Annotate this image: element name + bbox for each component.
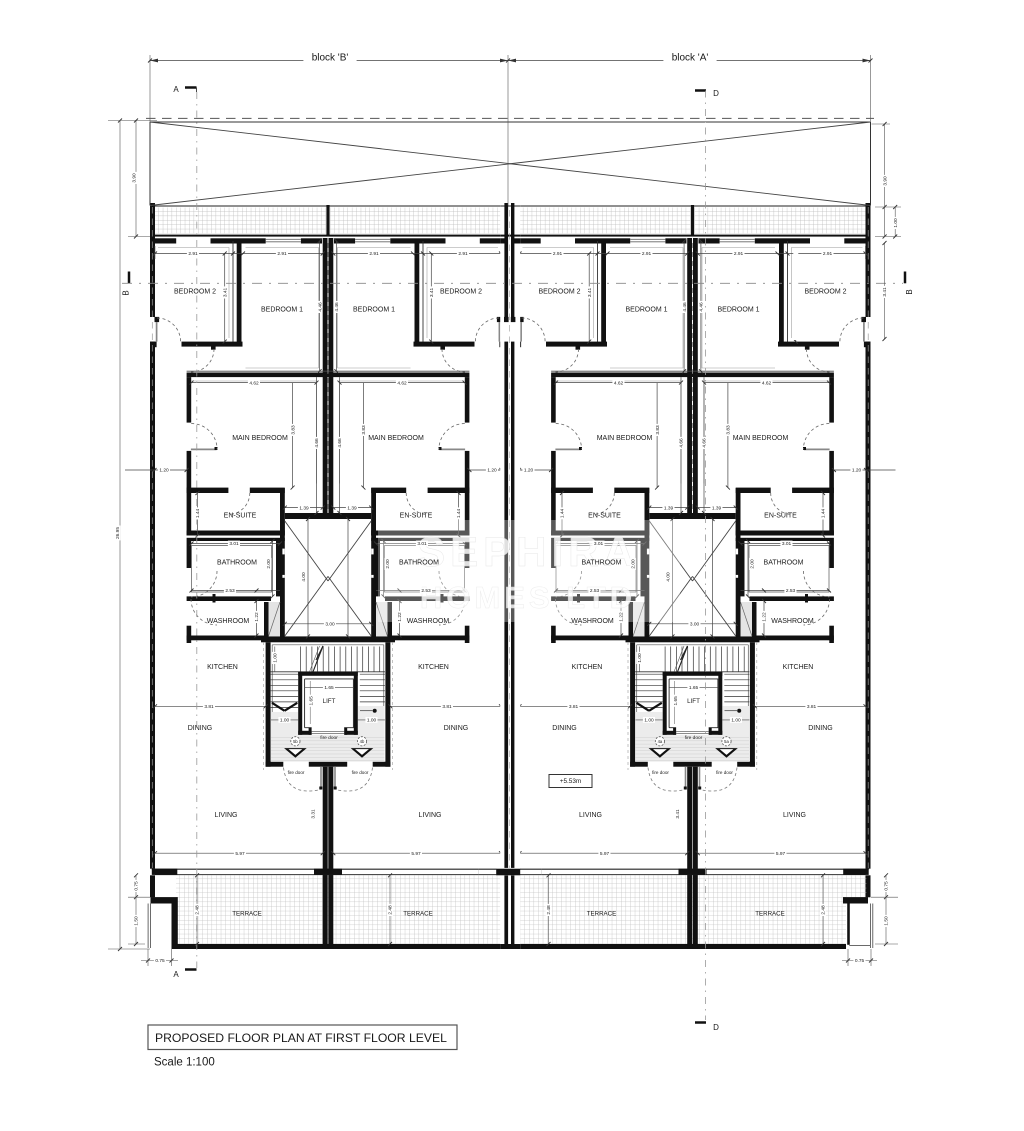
svg-text:MAIN BEDROOM: MAIN BEDROOM [597, 435, 653, 442]
svg-text:MAIN BEDROOM: MAIN BEDROOM [733, 435, 789, 442]
svg-text:WASHROOM: WASHROOM [771, 618, 814, 625]
svg-text:LIVING: LIVING [579, 812, 602, 819]
svg-text:1.00: 1.00 [893, 218, 899, 228]
svg-text:LIVING: LIVING [419, 812, 442, 819]
svg-text:5b: 5b [293, 739, 298, 744]
svg-text:2.91: 2.91 [277, 251, 287, 257]
svg-text:A: A [173, 85, 179, 94]
svg-text:fire door: fire door [288, 770, 305, 775]
svg-text:DINING: DINING [808, 725, 833, 732]
svg-text:3.01: 3.01 [782, 541, 792, 547]
svg-text:2.00: 2.00 [631, 559, 637, 569]
svg-text:4.62: 4.62 [249, 380, 259, 386]
svg-text:EN-SUITE: EN-SUITE [588, 513, 621, 520]
svg-text:BEDROOM 2: BEDROOM 2 [538, 288, 580, 295]
svg-text:2.91: 2.91 [188, 251, 198, 257]
svg-text:HOMES LTD: HOMES LTD [420, 580, 636, 615]
svg-text:2.48: 2.48 [821, 905, 827, 915]
svg-text:1.20: 1.20 [487, 468, 497, 474]
svg-text:1.44: 1.44 [456, 509, 462, 519]
svg-text:3.81: 3.81 [569, 704, 579, 710]
svg-text:3.41: 3.41 [429, 288, 435, 298]
svg-text:BEDROOM 1: BEDROOM 1 [353, 306, 395, 313]
svg-text:TERRACE: TERRACE [232, 911, 262, 918]
svg-text:WASHROOM: WASHROOM [407, 618, 450, 625]
svg-text:4.66: 4.66 [314, 438, 320, 448]
svg-text:DINING: DINING [444, 725, 469, 732]
svg-text:4.46: 4.46 [682, 302, 688, 312]
svg-text:2.53: 2.53 [421, 588, 431, 594]
svg-text:1.50: 1.50 [134, 916, 140, 926]
svg-text:DINING: DINING [552, 725, 577, 732]
svg-text:3.83: 3.83 [290, 425, 296, 435]
svg-text:1.44: 1.44 [195, 509, 201, 519]
svg-text:1.00: 1.00 [280, 718, 290, 724]
svg-text:1.20: 1.20 [524, 468, 534, 474]
svg-text:LIVING: LIVING [783, 812, 806, 819]
svg-text:3.01: 3.01 [229, 541, 239, 547]
svg-text:BATHROOM: BATHROOM [582, 560, 622, 567]
svg-text:BATHROOM: BATHROOM [764, 560, 804, 567]
svg-text:3.01: 3.01 [417, 541, 427, 547]
svg-text:BEDROOM 1: BEDROOM 1 [717, 306, 759, 313]
svg-text:3.41: 3.41 [675, 809, 681, 819]
svg-text:fire door: fire door [685, 735, 703, 741]
svg-text:BEDROOM 1: BEDROOM 1 [261, 306, 303, 313]
svg-text:3.01: 3.01 [594, 541, 604, 547]
svg-text:1.22: 1.22 [762, 612, 768, 622]
svg-text:A: A [173, 970, 179, 979]
svg-text:WASHROOM: WASHROOM [207, 618, 250, 625]
svg-text:TERRACE: TERRACE [755, 911, 785, 918]
svg-text:2.91: 2.91 [642, 251, 652, 257]
svg-text:3.83: 3.83 [361, 425, 367, 435]
svg-text:3.81: 3.81 [442, 704, 452, 710]
svg-text:1.44: 1.44 [821, 509, 827, 519]
svg-text:1.65: 1.65 [673, 696, 679, 706]
svg-text:PROPOSED FLOOR PLAN AT FIRST F: PROPOSED FLOOR PLAN AT FIRST FLOOR LEVEL [155, 1031, 447, 1045]
svg-text:2.53: 2.53 [225, 588, 235, 594]
svg-text:2.53: 2.53 [786, 588, 796, 594]
svg-text:1.20: 1.20 [159, 468, 169, 474]
svg-text:DINING: DINING [188, 725, 213, 732]
svg-text:3.90: 3.90 [882, 176, 888, 186]
svg-text:4.66: 4.66 [679, 438, 685, 448]
svg-text:3.41: 3.41 [222, 288, 228, 298]
svg-text:26.95: 26.95 [115, 527, 121, 539]
svg-text:2.91: 2.91 [823, 251, 833, 257]
svg-text:3.41: 3.41 [882, 287, 888, 297]
svg-text:D: D [713, 1023, 719, 1032]
svg-text:3.83: 3.83 [655, 425, 661, 435]
svg-text:3.81: 3.81 [807, 704, 817, 710]
svg-text:1.39: 1.39 [299, 505, 309, 511]
svg-text:1.39: 1.39 [664, 505, 674, 511]
svg-text:5.97: 5.97 [600, 851, 610, 857]
svg-text:3.31: 3.31 [311, 809, 317, 819]
svg-text:EN-SUITE: EN-SUITE [400, 513, 433, 520]
svg-text:SEPHIRA: SEPHIRA [417, 528, 639, 575]
svg-text:EN-SUITE: EN-SUITE [764, 513, 797, 520]
svg-text:LIFT: LIFT [323, 698, 336, 705]
svg-text:MAIN BEDROOM: MAIN BEDROOM [232, 435, 288, 442]
svg-text:0.75: 0.75 [134, 881, 140, 891]
svg-text:KITCHEN: KITCHEN [418, 664, 449, 671]
svg-text:BATHROOM: BATHROOM [217, 560, 257, 567]
svg-text:4.00: 4.00 [301, 572, 307, 582]
svg-text:B: B [121, 290, 130, 295]
svg-text:1.65: 1.65 [689, 685, 699, 691]
svg-text:B: B [905, 289, 914, 294]
svg-text:MAIN BEDROOM: MAIN BEDROOM [368, 435, 424, 442]
svg-text:5a: 5a [724, 739, 729, 744]
svg-text:4b: 4b [360, 739, 365, 744]
svg-text:2.91: 2.91 [734, 251, 744, 257]
svg-text:+5.53m: +5.53m [560, 778, 582, 785]
svg-text:2.48: 2.48 [195, 905, 201, 915]
svg-text:3.83: 3.83 [726, 425, 732, 435]
svg-text:2.00: 2.00 [385, 559, 391, 569]
svg-text:0.75: 0.75 [155, 958, 165, 964]
svg-text:BEDROOM 2: BEDROOM 2 [174, 288, 216, 295]
svg-text:TERRACE: TERRACE [403, 911, 433, 918]
svg-text:1.00: 1.00 [367, 718, 377, 724]
svg-text:1.39: 1.39 [347, 505, 357, 511]
svg-text:2.91: 2.91 [369, 251, 379, 257]
svg-text:3.00: 3.00 [690, 622, 700, 628]
svg-text:4.46: 4.46 [699, 302, 705, 312]
svg-text:0.75: 0.75 [855, 958, 865, 964]
svg-text:5.97: 5.97 [235, 851, 245, 857]
svg-text:Scale 1:100: Scale 1:100 [154, 1057, 215, 1069]
svg-text:2.48: 2.48 [388, 905, 394, 915]
svg-text:2.48: 2.48 [546, 905, 552, 915]
svg-text:1.22: 1.22 [397, 612, 403, 622]
svg-text:2.91: 2.91 [553, 251, 563, 257]
svg-text:4.00: 4.00 [666, 572, 672, 582]
svg-text:block 'B': block 'B' [312, 53, 349, 64]
svg-text:fire door: fire door [352, 770, 369, 775]
svg-text:3.00: 3.00 [325, 622, 335, 628]
svg-text:1.50: 1.50 [884, 916, 890, 926]
svg-text:fire door: fire door [320, 735, 338, 741]
svg-text:4.66: 4.66 [702, 438, 708, 448]
svg-text:3.81: 3.81 [204, 704, 214, 710]
svg-text:D: D [713, 89, 719, 98]
svg-text:fire door: fire door [716, 770, 733, 775]
svg-text:1.00: 1.00 [637, 653, 643, 663]
svg-text:4.66: 4.66 [337, 438, 343, 448]
svg-text:block 'A': block 'A' [672, 53, 709, 64]
svg-text:3.90: 3.90 [132, 173, 138, 183]
svg-text:4a: 4a [658, 739, 663, 744]
svg-text:1.39: 1.39 [712, 505, 722, 511]
svg-text:3.41: 3.41 [587, 288, 593, 298]
svg-text:WASHROOM: WASHROOM [571, 618, 614, 625]
svg-text:4.46: 4.46 [317, 302, 323, 312]
svg-text:KITCHEN: KITCHEN [572, 664, 603, 671]
svg-text:2.53: 2.53 [590, 588, 600, 594]
svg-text:EN-SUITE: EN-SUITE [224, 513, 257, 520]
svg-text:5.97: 5.97 [411, 851, 421, 857]
svg-text:4.62: 4.62 [762, 380, 772, 386]
svg-text:TERRACE: TERRACE [587, 911, 617, 918]
svg-text:1.22: 1.22 [254, 612, 260, 622]
svg-text:1.00: 1.00 [731, 718, 741, 724]
svg-text:BEDROOM 2: BEDROOM 2 [804, 288, 846, 295]
svg-text:BEDROOM 2: BEDROOM 2 [440, 288, 482, 295]
svg-text:0.75: 0.75 [884, 881, 890, 891]
svg-text:4.62: 4.62 [614, 380, 624, 386]
svg-text:LIFT: LIFT [687, 698, 700, 705]
svg-text:LIVING: LIVING [215, 812, 238, 819]
svg-text:KITCHEN: KITCHEN [207, 664, 238, 671]
svg-text:1.00: 1.00 [644, 718, 654, 724]
svg-text:5.97: 5.97 [776, 851, 786, 857]
svg-text:BATHROOM: BATHROOM [399, 560, 439, 567]
svg-text:2.91: 2.91 [458, 251, 468, 257]
svg-text:1.44: 1.44 [560, 509, 566, 519]
svg-text:BEDROOM 1: BEDROOM 1 [625, 306, 667, 313]
svg-text:1.65: 1.65 [324, 685, 334, 691]
svg-text:1.20: 1.20 [852, 468, 862, 474]
svg-text:4.62: 4.62 [397, 380, 407, 386]
svg-text:1.00: 1.00 [273, 653, 279, 663]
svg-text:4.46: 4.46 [334, 302, 340, 312]
svg-text:KITCHEN: KITCHEN [783, 664, 814, 671]
svg-text:2.00: 2.00 [266, 559, 272, 569]
svg-text:1.65: 1.65 [309, 696, 315, 706]
svg-text:fire door: fire door [652, 770, 669, 775]
svg-text:1.22: 1.22 [619, 612, 625, 622]
svg-text:2.00: 2.00 [750, 559, 756, 569]
